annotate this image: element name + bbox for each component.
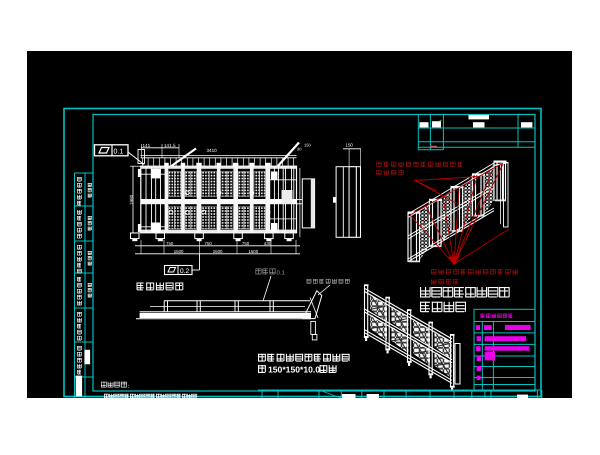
svg-text:750: 750 — [205, 241, 213, 246]
svg-text:150: 150 — [346, 143, 354, 148]
svg-text:0.1: 0.1 — [277, 270, 286, 277]
svg-text:0.2: 0.2 — [180, 268, 189, 275]
svg-text:150: 150 — [304, 143, 311, 148]
svg-text:1500: 1500 — [213, 249, 223, 254]
svg-text:1500: 1500 — [248, 249, 258, 254]
svg-text:0.1: 0.1 — [114, 148, 124, 155]
svg-text:141: 141 — [143, 143, 151, 148]
svg-text:750: 750 — [166, 241, 174, 246]
svg-text:30: 30 — [297, 147, 302, 152]
svg-text:141.5: 141.5 — [164, 143, 176, 148]
svg-text:430: 430 — [264, 241, 272, 246]
svg-text:150*150*10.0: 150*150*10.0 — [268, 364, 320, 374]
svg-text:1500: 1500 — [174, 249, 184, 254]
svg-text:3410: 3410 — [207, 148, 218, 153]
svg-text:1980: 1980 — [129, 194, 134, 205]
svg-text:750: 750 — [242, 241, 250, 246]
